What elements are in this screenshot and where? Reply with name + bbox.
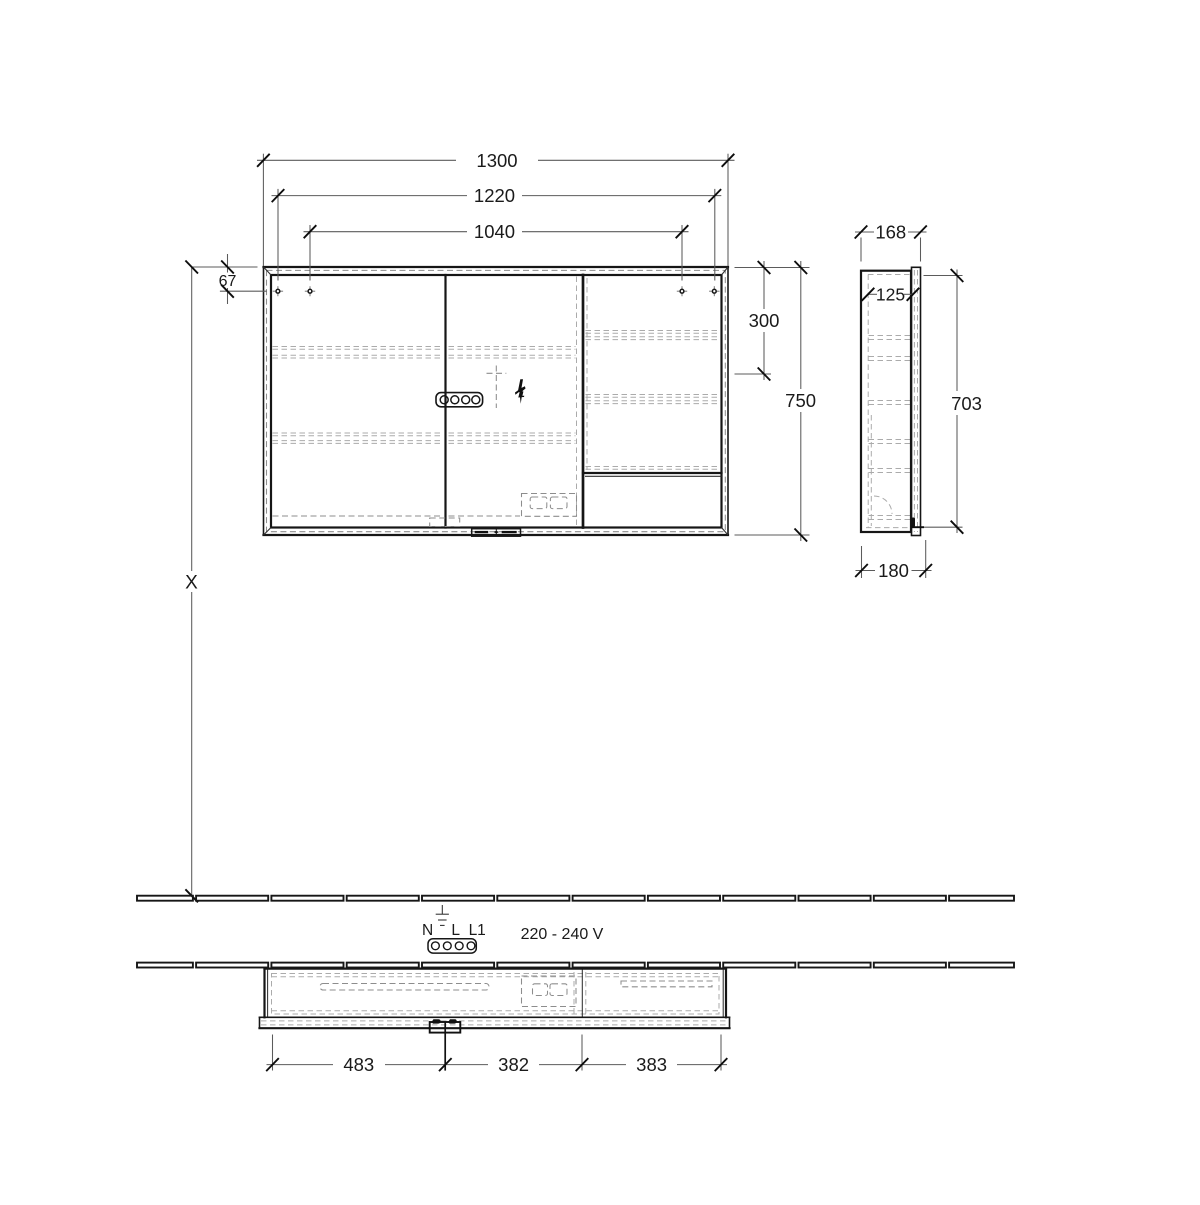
svg-text:382: 382 — [498, 1054, 529, 1075]
svg-text:483: 483 — [343, 1054, 374, 1075]
svg-text:67: 67 — [219, 273, 237, 290]
svg-text:1220: 1220 — [474, 185, 515, 206]
svg-text:300: 300 — [749, 310, 780, 331]
svg-text:703: 703 — [951, 393, 982, 414]
svg-text:N: N — [422, 922, 433, 939]
svg-text:168: 168 — [875, 221, 906, 242]
svg-text:L1: L1 — [469, 922, 486, 939]
svg-text:125: 125 — [876, 284, 905, 304]
svg-text:750: 750 — [785, 390, 816, 411]
svg-text:220 - 240 V: 220 - 240 V — [521, 926, 604, 943]
svg-text:1040: 1040 — [474, 221, 515, 242]
svg-text:X: X — [185, 572, 198, 593]
svg-text:L: L — [451, 922, 460, 939]
svg-text:180: 180 — [878, 560, 909, 581]
svg-text:383: 383 — [636, 1054, 667, 1075]
svg-text:1300: 1300 — [476, 150, 517, 171]
